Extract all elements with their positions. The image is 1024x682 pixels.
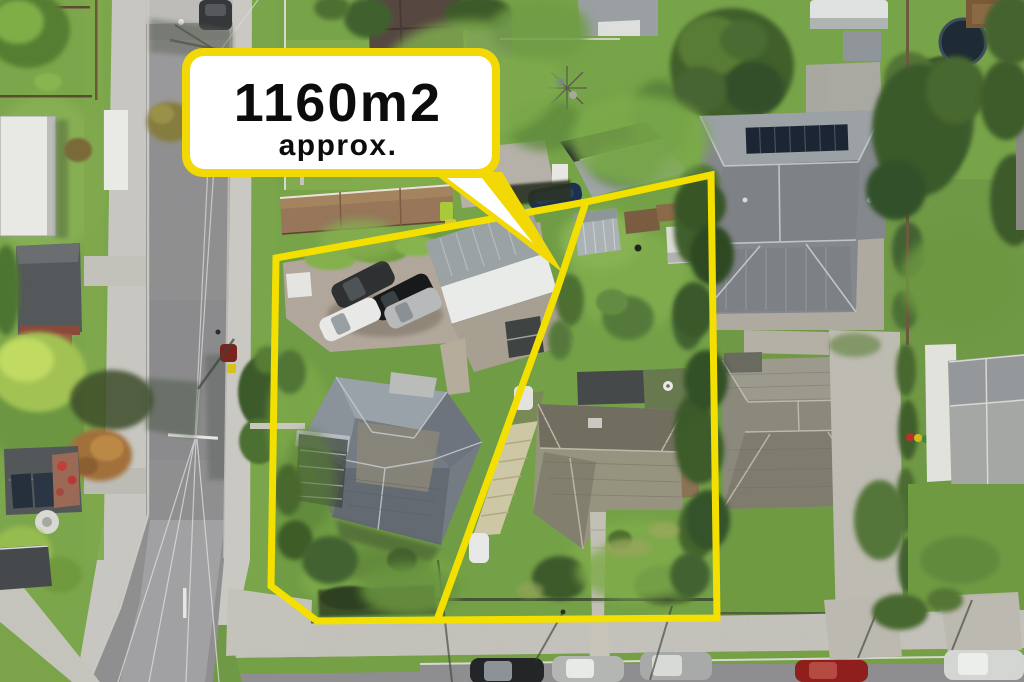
svg-text:approx.: approx. [279,129,398,162]
svg-text:1160m2: 1160m2 [234,73,442,133]
